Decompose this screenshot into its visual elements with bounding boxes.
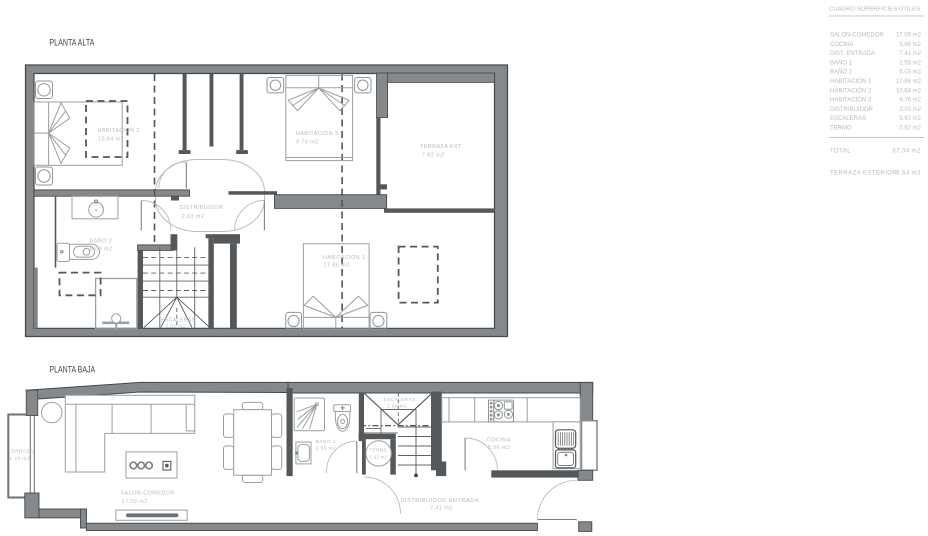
svg-text:PLANTA BAJA: PLANTA BAJA bbox=[49, 365, 95, 375]
svg-text:ESCALERAS: ESCALERAS bbox=[384, 397, 416, 402]
svg-text:8.64 m2: 8.64 m2 bbox=[896, 171, 921, 177]
svg-text:CUADRO SUPERFICIES ÚTILES: CUADRO SUPERFICIES ÚTILES bbox=[829, 6, 920, 13]
svg-text:ESCALERAS: ESCALERAS bbox=[161, 318, 196, 324]
svg-text:10.64 m2: 10.64 m2 bbox=[896, 88, 922, 94]
svg-text:COCINA: COCINA bbox=[830, 42, 853, 48]
svg-text:DISTRIBUIDOR: DISTRIBUIDOR bbox=[180, 205, 224, 211]
svg-text:HABITACIÓN 1: HABITACIÓN 1 bbox=[830, 78, 872, 85]
svg-text:BAÑO 1: BAÑO 1 bbox=[830, 59, 853, 66]
svg-text:10.64 m2: 10.64 m2 bbox=[98, 137, 124, 143]
svg-text:BAÑO 2: BAÑO 2 bbox=[90, 238, 112, 245]
svg-text:2.96 m2: 2.96 m2 bbox=[387, 403, 407, 408]
svg-text:5.66 m2: 5.66 m2 bbox=[899, 42, 921, 48]
svg-text:7.82 m2: 7.82 m2 bbox=[422, 153, 445, 159]
svg-text:9.76 m2: 9.76 m2 bbox=[899, 98, 921, 104]
svg-text:ESCALERAS: ESCALERAS bbox=[830, 116, 866, 122]
svg-text:DIST. ENTRADA: DIST. ENTRADA bbox=[830, 51, 875, 57]
svg-text:HABITACIÓN 2: HABITACIÓN 2 bbox=[98, 127, 140, 134]
svg-text:TERRAZA EXT: TERRAZA EXT bbox=[420, 144, 462, 150]
svg-text:HABITACIÓN 2: HABITACIÓN 2 bbox=[830, 87, 872, 94]
svg-text:2.03 m2: 2.03 m2 bbox=[182, 214, 205, 220]
svg-text:SALON-COMEDOR: SALON-COMEDOR bbox=[121, 491, 175, 497]
svg-text:9.76 m2: 9.76 m2 bbox=[296, 139, 319, 145]
svg-text:2.55 m2: 2.55 m2 bbox=[899, 60, 921, 66]
svg-text:HABITACIÓN 1: HABITACIÓN 1 bbox=[323, 254, 365, 261]
svg-text:PLANTA ALTA: PLANTA ALTA bbox=[49, 38, 94, 48]
svg-text:0.62 m2: 0.62 m2 bbox=[899, 126, 921, 132]
svg-text:3.31 m2: 3.31 m2 bbox=[165, 323, 186, 329]
svg-text:SALON-COMEDOR: SALON-COMEDOR bbox=[830, 33, 884, 39]
svg-text:2.55 m2: 2.55 m2 bbox=[316, 446, 337, 452]
svg-text:TERRAZA: TERRAZA bbox=[8, 449, 34, 455]
svg-text:2.03 m2: 2.03 m2 bbox=[899, 107, 921, 113]
svg-text:17.09 m2: 17.09 m2 bbox=[896, 33, 922, 39]
svg-text:TERMO: TERMO bbox=[369, 448, 387, 453]
svg-text:DISTRIBUIDOR ENTRADA: DISTRIBUIDOR ENTRADA bbox=[401, 498, 480, 504]
svg-text:17.86 m2: 17.86 m2 bbox=[324, 263, 350, 269]
svg-text:TERRAZA EXTERIOR: TERRAZA EXTERIOR bbox=[830, 171, 897, 177]
svg-text:17.09 m2: 17.09 m2 bbox=[122, 499, 148, 505]
svg-text:COCINA: COCINA bbox=[487, 438, 511, 444]
svg-text:7.41 m2: 7.41 m2 bbox=[899, 51, 921, 57]
svg-text:BAÑO 1: BAÑO 1 bbox=[316, 438, 337, 445]
svg-text:17.86 m2: 17.86 m2 bbox=[896, 79, 922, 85]
svg-text:DISTRIBUIDOR: DISTRIBUIDOR bbox=[830, 107, 874, 113]
svg-text:6.03 m2: 6.03 m2 bbox=[899, 70, 921, 76]
svg-text:HABITACIÓN 3: HABITACIÓN 3 bbox=[296, 130, 338, 137]
svg-text:7.41 m2: 7.41 m2 bbox=[430, 506, 453, 512]
svg-text:87.34 m2: 87.34 m2 bbox=[892, 149, 921, 155]
svg-text:6.03 m2: 6.03 m2 bbox=[90, 246, 113, 252]
svg-text:0.62 m2: 0.62 m2 bbox=[369, 455, 388, 460]
svg-text:TOTAL: TOTAL bbox=[830, 149, 851, 155]
svg-text:TERMO: TERMO bbox=[830, 126, 852, 132]
svg-text:1.22 m2: 1.22 m2 bbox=[10, 456, 30, 462]
svg-text:5.66 m2: 5.66 m2 bbox=[488, 445, 511, 451]
svg-text:HABITACIÓN 3: HABITACIÓN 3 bbox=[830, 97, 872, 104]
svg-text:5.67 m2: 5.67 m2 bbox=[899, 116, 921, 122]
svg-text:BAÑO 2: BAÑO 2 bbox=[830, 69, 853, 76]
